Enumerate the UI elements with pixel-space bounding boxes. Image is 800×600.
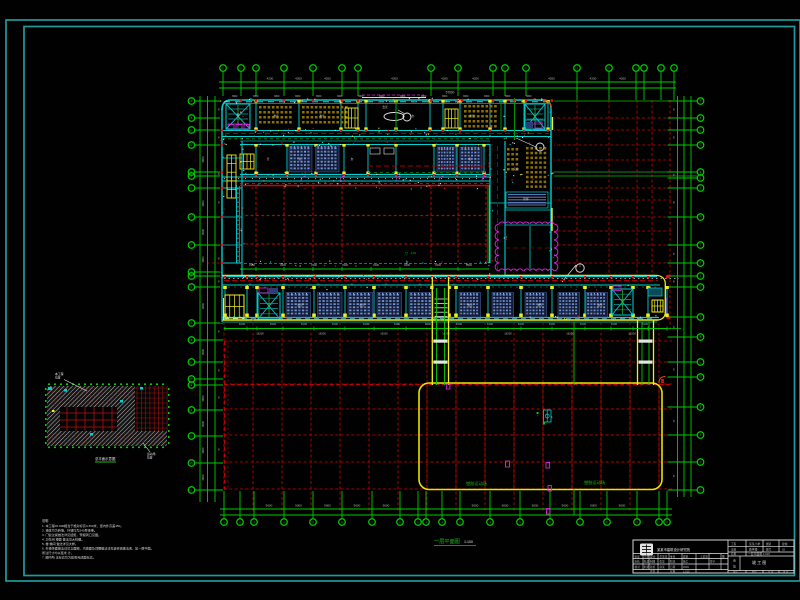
- svg-text:16200: 16200: [380, 332, 388, 336]
- svg-text:审定: 审定: [635, 554, 641, 558]
- svg-text:4200: 4200: [590, 77, 597, 81]
- svg-text:比例: 比例: [670, 569, 676, 573]
- svg-text:3600: 3600: [484, 95, 490, 98]
- svg-text:塑胶运动场: 塑胶运动场: [584, 479, 605, 486]
- svg-text:2. 墙体均为砖墙，外墙均为240厚承重。: 2. 墙体均为砖墙，外墙均为240厚承重。: [42, 528, 97, 533]
- svg-text:陈某: 陈某: [644, 560, 650, 564]
- svg-text:3600: 3600: [295, 95, 301, 98]
- svg-text:5. 楼 梯间 做法详见大样。: 5. 楼 梯间 做法详见大样。: [42, 541, 78, 546]
- svg-text:一层平面图: 一层平面图: [434, 538, 460, 545]
- svg-text:16200: 16200: [566, 332, 574, 336]
- svg-text:H: H: [191, 462, 193, 465]
- svg-text:3600: 3600: [505, 95, 511, 98]
- svg-text:图: 图: [722, 554, 725, 558]
- svg-text:8100: 8100: [363, 322, 369, 326]
- svg-text:G: G: [191, 435, 193, 438]
- svg-text:竣 工 图: 竣 工 图: [752, 559, 766, 565]
- svg-text:教学楼: 教学楼: [749, 548, 758, 552]
- svg-text:8100: 8100: [239, 322, 245, 326]
- svg-text:8100: 8100: [549, 322, 555, 326]
- svg-text:1. 本工程±0.000相当于绝对标高4.350米，室内外高: 1. 本工程±0.000相当于绝对标高4.350米，室内外高差450。: [42, 523, 123, 528]
- svg-text:教室: 教室: [273, 114, 279, 118]
- svg-text:3900: 3900: [201, 228, 205, 235]
- svg-text:9000: 9000: [354, 504, 361, 508]
- svg-text:8100: 8100: [425, 322, 431, 326]
- svg-text:4200: 4200: [324, 77, 331, 81]
- svg-text:16200: 16200: [318, 332, 326, 336]
- svg-text:3900: 3900: [201, 302, 205, 309]
- svg-text:室: 室: [267, 157, 270, 161]
- svg-text:教室: 教室: [467, 303, 473, 307]
- svg-text:教室: 教室: [319, 114, 325, 118]
- svg-text:1:100: 1:100: [683, 569, 690, 573]
- svg-text:3600: 3600: [400, 95, 406, 98]
- svg-text:3600: 3600: [526, 95, 532, 98]
- svg-text:建筑: 建筑: [683, 554, 689, 558]
- svg-text:3600: 3600: [316, 95, 322, 98]
- svg-text:D: D: [700, 376, 702, 379]
- svg-text:D: D: [700, 144, 702, 147]
- svg-text:8100: 8100: [394, 322, 400, 326]
- svg-text:02: 02: [782, 548, 786, 552]
- svg-text:梯: 梯: [237, 113, 240, 117]
- svg-text:3300: 3300: [311, 263, 317, 267]
- svg-text:4200: 4200: [441, 77, 448, 81]
- svg-text:3600: 3600: [379, 95, 385, 98]
- svg-text:4200: 4200: [295, 77, 302, 81]
- svg-text:教室: 教室: [597, 303, 603, 307]
- svg-text:共 张: 共 张: [768, 570, 774, 574]
- svg-text:9000: 9000: [295, 504, 302, 508]
- svg-text:复核: 复核: [650, 565, 656, 569]
- svg-text:9000: 9000: [562, 504, 569, 508]
- svg-text:1:100: 1:100: [464, 540, 473, 544]
- svg-text:制图: 制图: [650, 560, 656, 564]
- svg-text:3300: 3300: [373, 263, 379, 267]
- svg-text:8100: 8100: [332, 322, 338, 326]
- svg-text:审定: 审定: [733, 570, 738, 574]
- svg-text:阶段: 阶段: [670, 560, 676, 564]
- svg-text:图号: 图号: [766, 548, 772, 552]
- svg-text:7. 图中所 注标高均为建筑完成面标高。: 7. 图中所 注标高均为建筑完成面标高。: [42, 555, 96, 560]
- svg-text:4200: 4200: [391, 77, 398, 81]
- svg-text:所注尺寸均以毫米 计。: 所注尺寸均以毫米 计。: [42, 550, 74, 555]
- svg-text:3300: 3300: [280, 263, 286, 267]
- svg-text:3600: 3600: [274, 95, 280, 98]
- svg-text:教室: 教室: [469, 114, 475, 118]
- svg-text:8100: 8100: [580, 322, 586, 326]
- svg-text:3900: 3900: [201, 256, 205, 263]
- svg-text:办: 办: [412, 114, 415, 118]
- svg-text:3900: 3900: [201, 156, 205, 163]
- svg-text:校对: 校对: [635, 565, 641, 569]
- svg-text:16200: 16200: [504, 332, 512, 336]
- svg-text:专业: 专业: [670, 554, 676, 558]
- svg-text:会签: 会签: [650, 569, 656, 573]
- svg-text:4200: 4200: [619, 77, 626, 81]
- svg-text:3600: 3600: [421, 95, 427, 98]
- svg-text:塑胶运动场: 塑胶运动场: [466, 480, 487, 487]
- svg-text:4200: 4200: [548, 77, 555, 81]
- svg-text:8100: 8100: [270, 322, 276, 326]
- svg-text:C: C: [191, 361, 193, 364]
- svg-text:名称: 名称: [731, 552, 737, 556]
- svg-text:一层平面图 1:100: 一层平面图 1:100: [748, 552, 770, 556]
- svg-text:H: H: [191, 216, 193, 219]
- svg-text:审核: 审核: [635, 560, 641, 564]
- svg-text:教室: 教室: [297, 303, 303, 307]
- svg-text:工程: 工程: [731, 542, 737, 546]
- svg-text:D: D: [191, 144, 193, 147]
- svg-text:9000: 9000: [532, 504, 539, 508]
- svg-text:第 张: 第 张: [783, 570, 789, 574]
- svg-text:王某: 王某: [644, 554, 650, 558]
- svg-text:王某某: 王某某: [700, 554, 708, 558]
- svg-text:3900: 3900: [201, 447, 205, 454]
- svg-text:9000: 9000: [383, 504, 390, 508]
- svg-text:刘某: 刘某: [644, 565, 650, 569]
- svg-text:3600: 3600: [442, 95, 448, 98]
- svg-text:H: H: [700, 489, 702, 492]
- svg-text:G: G: [700, 187, 702, 190]
- svg-text:位置: 位置: [55, 376, 61, 380]
- svg-text:8100: 8100: [642, 322, 648, 326]
- svg-text:签: 签: [733, 564, 736, 569]
- svg-text:8100: 8100: [518, 322, 524, 326]
- svg-text:图别: 图别: [766, 542, 772, 546]
- svg-text:3900: 3900: [201, 395, 205, 402]
- svg-text:G: G: [700, 461, 702, 464]
- svg-text:C: C: [700, 129, 702, 132]
- svg-text:C: C: [191, 129, 193, 132]
- svg-text:9000: 9000: [472, 504, 479, 508]
- svg-text:C: C: [700, 361, 702, 364]
- svg-text:教室: 教室: [359, 303, 365, 307]
- svg-text:9000: 9000: [324, 504, 331, 508]
- svg-text:4200: 4200: [472, 77, 479, 81]
- svg-text:9000: 9000: [590, 504, 597, 508]
- svg-text:3300: 3300: [404, 263, 410, 267]
- svg-text:H: H: [700, 216, 702, 219]
- svg-text:位置: 位置: [147, 456, 153, 460]
- svg-text:项目: 项目: [731, 548, 737, 552]
- svg-text:张某: 张某: [660, 560, 666, 564]
- svg-text:16200: 16200: [256, 332, 264, 336]
- svg-text:签字: 签字: [710, 560, 716, 564]
- svg-text:9000: 9000: [502, 504, 509, 508]
- svg-text:8100: 8100: [301, 322, 307, 326]
- svg-text:实验: 实验: [513, 167, 519, 171]
- svg-text:6. 外墙饰面做法详见立面图，内墙面及顶棚做法详见装修表做法: 6. 外墙饰面做法详见立面图，内墙面及顶棚做法详见装修表做法表，如一层平面。: [42, 546, 154, 551]
- svg-text:建施: 建施: [782, 542, 788, 546]
- svg-text:D: D: [191, 378, 193, 381]
- svg-text:4. 卫生间 楼面 做法见大样图。: 4. 卫生间 楼面 做法见大样图。: [42, 537, 84, 542]
- svg-text:3900: 3900: [201, 420, 205, 427]
- svg-text:3600: 3600: [358, 95, 364, 98]
- svg-text:阅: 阅: [299, 157, 302, 161]
- svg-text:4200: 4200: [267, 77, 274, 81]
- svg-text:李某某: 李某某: [660, 554, 668, 558]
- svg-text:2009: 2009: [683, 565, 689, 569]
- svg-text:3. 门窗过梁做法详见结施，预留洞口见图。: 3. 门窗过梁做法详见结施，预留洞口见图。: [42, 532, 101, 537]
- svg-text:8100: 8100: [611, 322, 617, 326]
- svg-text:9000: 9000: [619, 504, 626, 508]
- svg-text:3600: 3600: [253, 95, 259, 98]
- svg-text:3300: 3300: [435, 263, 441, 267]
- svg-text:某某小学: 某某小学: [749, 542, 760, 546]
- svg-text:会议: 会议: [382, 105, 388, 109]
- svg-text:G: G: [191, 187, 193, 190]
- svg-text:教室: 教室: [537, 303, 543, 307]
- svg-text:会: 会: [733, 558, 736, 563]
- svg-text:3900: 3900: [201, 474, 205, 481]
- svg-text:3900: 3900: [201, 200, 205, 207]
- svg-text:16200: 16200: [628, 332, 636, 336]
- svg-text:阶梯: 阶梯: [523, 197, 529, 201]
- svg-text:赵某: 赵某: [660, 565, 666, 569]
- svg-text:施工: 施工: [683, 560, 689, 564]
- svg-text:3600: 3600: [337, 95, 343, 98]
- svg-text:3600: 3600: [232, 95, 238, 98]
- svg-text:3600: 3600: [463, 95, 469, 98]
- svg-text:设计: 设计: [650, 554, 656, 558]
- svg-text:日期: 日期: [670, 565, 676, 569]
- svg-text:说明: 说明: [42, 518, 48, 523]
- svg-text:-0.45: -0.45: [410, 251, 416, 255]
- svg-text:3300: 3300: [342, 263, 348, 267]
- svg-text:9000: 9000: [266, 504, 273, 508]
- svg-text:办: 办: [351, 157, 354, 161]
- svg-text:某某市建筑设计研究院: 某某市建筑设计研究院: [657, 547, 691, 552]
- svg-text:8100: 8100: [487, 322, 493, 326]
- svg-text:图号: 图号: [752, 570, 757, 574]
- svg-text:3900: 3900: [201, 348, 205, 355]
- svg-text:8100: 8100: [456, 322, 462, 326]
- svg-text:总平面示意图: 总平面示意图: [95, 456, 116, 461]
- svg-text:阅: 阅: [469, 157, 472, 161]
